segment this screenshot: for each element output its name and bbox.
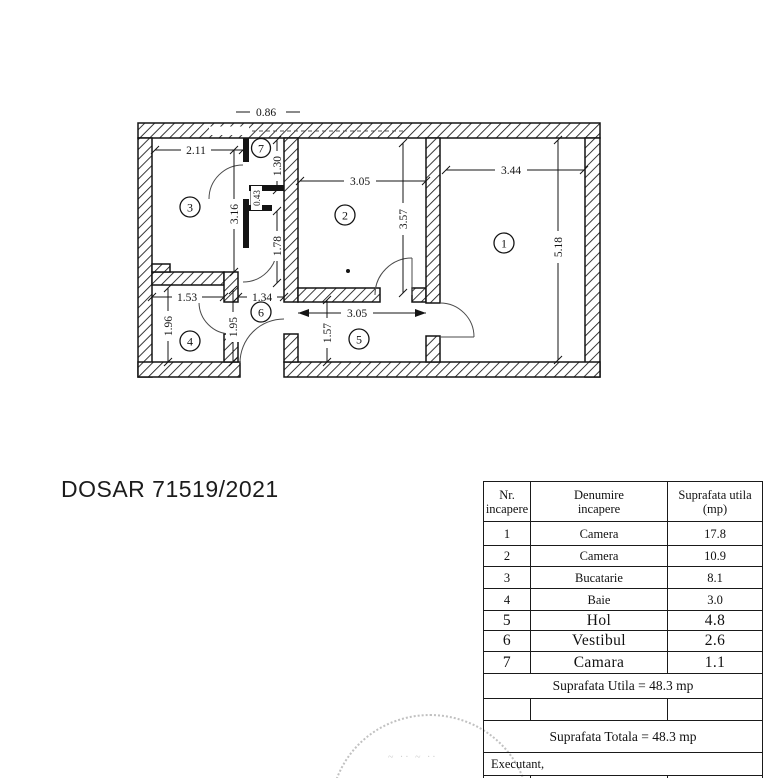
- svg-text:5.18: 5.18: [553, 237, 565, 257]
- svg-text:1: 1: [501, 237, 507, 251]
- table-row: 5 Hol 4.8: [484, 611, 763, 631]
- room-circle-camera2: 2: [335, 205, 355, 225]
- table-row: 1 Camera 17.8: [484, 522, 763, 546]
- door-arc-room1: [440, 303, 474, 337]
- svg-text:2: 2: [342, 209, 348, 223]
- table-row: 2 Camera 10.9: [484, 546, 763, 567]
- svg-text:7: 7: [258, 142, 264, 156]
- door-arc-entrance: [240, 319, 284, 363]
- interior-walls: [152, 138, 440, 362]
- svg-text:1.78: 1.78: [272, 236, 284, 256]
- svg-text:3.05: 3.05: [347, 308, 367, 320]
- table-row: 7 Camara 1.1: [484, 652, 763, 674]
- dim-label-room3-height: 3.16: [227, 199, 241, 229]
- plan-dot: [346, 269, 350, 273]
- room-circle-bucatarie: 3: [180, 197, 200, 217]
- dim-label-corridor: 1.78: [270, 231, 284, 261]
- svg-text:4: 4: [187, 335, 193, 349]
- svg-text:1.96: 1.96: [163, 316, 175, 336]
- scanned-document-page: 0.86 2.11 3.16 1.30 0.43 1.78: [0, 0, 778, 778]
- svg-text:3.16: 3.16: [229, 204, 241, 224]
- svg-text:1.30: 1.30: [272, 156, 284, 176]
- dim-label-room1-height: 5.18: [551, 231, 565, 263]
- svg-text:2.11: 2.11: [186, 145, 206, 157]
- svg-text:3.05: 3.05: [350, 176, 370, 188]
- dim-label-vestibul-height: 1.95: [226, 312, 240, 342]
- dim-label-room7-height: 1.30: [270, 151, 284, 181]
- svg-text:1.95: 1.95: [228, 317, 240, 337]
- room-circle-camera1: 1: [494, 233, 514, 253]
- dim-label-room4-height: 1.96: [161, 311, 175, 341]
- dim-label-niche: 0.43: [251, 186, 262, 210]
- total-totala-row: Suprafata Totala = 48.3 mp: [484, 721, 763, 753]
- svg-text:0.86: 0.86: [256, 107, 276, 119]
- dim-label-room1-width: 3.44: [495, 163, 527, 177]
- header-denumire: Denumire incapere: [531, 482, 668, 522]
- room-circle-camara: 7: [252, 139, 271, 158]
- dim-label-top: 0.86: [251, 105, 281, 119]
- svg-text:3.44: 3.44: [501, 165, 521, 177]
- table-row: 4 Baie 3.0: [484, 589, 763, 611]
- executant-row: Executant,: [484, 753, 763, 776]
- header-suprafata: Suprafata utila (mp): [668, 482, 763, 522]
- svg-text:1.53: 1.53: [177, 292, 197, 304]
- table-header-row: Nr. incapere Denumire incapere Suprafata…: [484, 482, 763, 522]
- dim-label-room2-height: 3.57: [396, 203, 410, 235]
- svg-text:6: 6: [258, 306, 264, 320]
- dim-label-room4-width: 1.53: [172, 290, 202, 304]
- dim-label-room2-width: 3.05: [344, 174, 376, 188]
- svg-text:3.57: 3.57: [398, 209, 410, 229]
- svg-text:5: 5: [356, 333, 362, 347]
- stamp-marks: ~ ·· ~ ··: [388, 752, 458, 774]
- svg-text:3: 3: [187, 201, 193, 215]
- header-nr: Nr. incapere: [484, 482, 531, 522]
- areas-table-container: Nr. incapere Denumire incapere Suprafata…: [483, 481, 763, 778]
- dim-label-hol-height: 1.57: [320, 318, 334, 348]
- dosar-number: DOSAR 71519/2021: [61, 476, 279, 503]
- dim-label-hol-width: 3.05: [341, 306, 373, 320]
- table-row: 3 Bucatarie 8.1: [484, 567, 763, 589]
- dim-label-room3-width: 2.11: [181, 143, 211, 157]
- door-arc-room3: [209, 165, 243, 199]
- top-wall-window: [209, 127, 249, 136]
- areas-table: Nr. incapere Denumire incapere Suprafata…: [483, 481, 763, 778]
- room-circle-vestibul: 6: [251, 302, 271, 322]
- svg-text:1.57: 1.57: [322, 323, 334, 343]
- table-row: 6 Vestibul 2.6: [484, 631, 763, 652]
- room-circle-hol: 5: [349, 329, 369, 349]
- total-utila-row: Suprafata Utila = 48.3 mp: [484, 674, 763, 699]
- empty-row: [484, 699, 763, 721]
- svg-text:0.43: 0.43: [252, 190, 262, 206]
- room-circle-baie: 4: [180, 331, 200, 351]
